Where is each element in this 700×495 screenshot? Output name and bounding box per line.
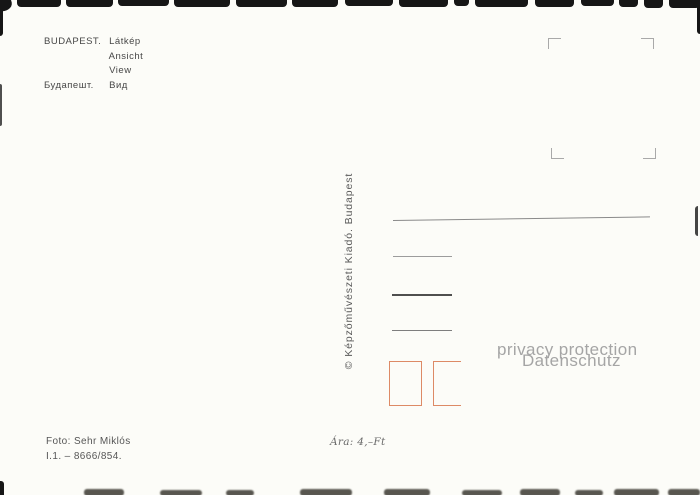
torn-edge-right-mid [695, 206, 698, 236]
stamp-corner-mark-top-left [548, 38, 561, 49]
title-city-cyrillic: Будапешт. [44, 79, 106, 94]
caption-russian: Вид [109, 80, 128, 91]
torn-edge-left-top [0, 0, 3, 36]
stamp-corner-mark-bottom-right [643, 148, 656, 159]
caption-row: Ansicht [44, 50, 143, 65]
caption-block: BUDAPEST. Látkép Ansicht View Будапешт. … [44, 35, 143, 93]
address-line-3 [392, 330, 452, 331]
watermark-line-2: Datenschutz [522, 351, 621, 371]
address-line-1 [393, 256, 452, 257]
caption-german: Ansicht [109, 51, 144, 62]
caption-row: BUDAPEST. Látkép [44, 35, 143, 50]
caption-row: View [44, 64, 143, 79]
address-line-long [393, 216, 650, 221]
stamp-corner-mark-top-right [641, 38, 654, 49]
stamp-box-right-clipped [433, 361, 461, 406]
torn-edge-left-mid [0, 84, 2, 126]
torn-edge-bottom [0, 485, 700, 495]
stamp-corner-mark-bottom-left [551, 148, 564, 159]
title-city: BUDAPEST. [44, 35, 106, 50]
photo-credit: Foto: Sehr Miklós [46, 436, 131, 447]
caption-english: View [109, 65, 131, 76]
caption-hungarian: Látkép [109, 36, 141, 47]
caption-row: Будапешт. Вид [44, 79, 143, 94]
price-label: Ára: 4,–Ft [330, 436, 386, 448]
catalog-number: I.1. – 8666/854. [46, 451, 122, 462]
address-line-2 [392, 294, 452, 296]
torn-edge-top [0, 0, 700, 15]
stamp-box-left [389, 361, 422, 406]
postcard-back: BUDAPEST. Látkép Ansicht View Будапешт. … [0, 0, 700, 495]
publisher-imprint: © Képzőművészeti Kiadó. Budapest [343, 173, 355, 369]
